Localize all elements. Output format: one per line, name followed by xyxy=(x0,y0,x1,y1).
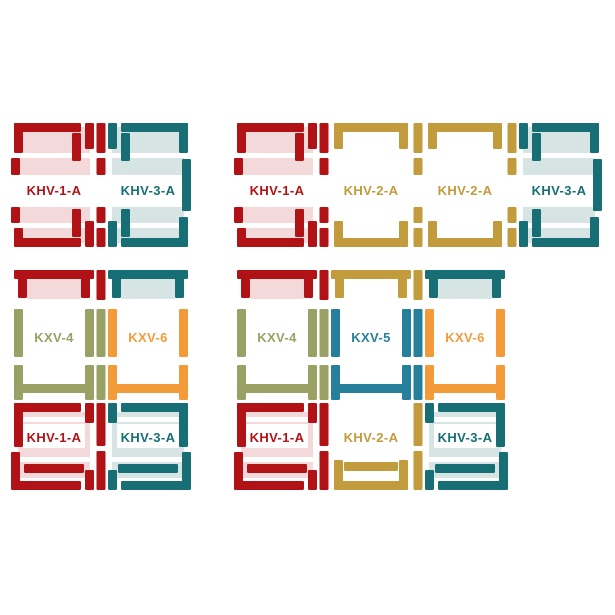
flashing-bar xyxy=(112,270,121,298)
flashing-bar xyxy=(334,238,408,247)
flashing-bar xyxy=(335,270,344,298)
flashing-bar xyxy=(72,209,81,237)
flashing-bar xyxy=(308,403,317,423)
flashing-unit-label: KHV-2-A xyxy=(344,430,399,445)
flashing-bar xyxy=(428,221,437,247)
flashing-unit-label: KXV-5 xyxy=(351,330,391,345)
flashing-unit-label: KXV-6 xyxy=(128,330,168,345)
flashing-bar xyxy=(532,133,541,161)
flashing-bar xyxy=(85,221,94,247)
connector-bar xyxy=(320,228,329,247)
flashing-unit-kxv-6: KXV-6 xyxy=(425,270,505,400)
flashing-unit-khv-2-a: KHV-2-A xyxy=(428,123,502,247)
connector-bar xyxy=(414,270,423,300)
connector-bar xyxy=(414,228,423,247)
flashing-unit-kxv-6: KXV-6 xyxy=(108,270,188,400)
flashing-bar xyxy=(295,133,304,161)
flashing-unit-kxv-4: KXV-4 xyxy=(14,270,94,400)
fill-notch-stripe xyxy=(429,457,501,462)
flashing-bar xyxy=(121,133,130,161)
flashing-bar xyxy=(14,309,23,357)
flashing-unit-khv-1-a: KHV-1-A xyxy=(232,123,322,247)
flashing-bar xyxy=(24,464,84,473)
flashing-bar xyxy=(237,123,246,153)
flashing-bar xyxy=(85,470,94,490)
flashing-unit-label: KHV-3-A xyxy=(121,430,176,445)
flashing-group-top-left: KHV-1-AKHV-3-A xyxy=(9,118,193,252)
flashing-bar xyxy=(72,133,81,161)
flashing-bar xyxy=(14,238,81,247)
flashing-unit-label: KHV-1-A xyxy=(250,183,305,198)
flashing-bar xyxy=(425,470,434,490)
flashing-bar xyxy=(398,270,407,298)
flashing-bar xyxy=(429,270,438,298)
flashing-bar xyxy=(308,365,317,400)
flashing-bar xyxy=(14,403,81,412)
fill-notch-stripe xyxy=(515,223,603,228)
connector-bar xyxy=(320,270,329,300)
flashing-bar xyxy=(14,123,81,132)
flashing-bar xyxy=(493,123,502,149)
flashing-bar xyxy=(334,460,343,490)
flashing-bar xyxy=(331,309,340,357)
flashing-bar xyxy=(492,270,501,298)
flashing-unit-khv-3-a: KHV-3-A xyxy=(103,123,193,247)
flashing-unit-khv-3-a: KHV-3-A xyxy=(514,123,604,247)
fill-notch-stripe xyxy=(18,417,90,422)
connector-bar xyxy=(97,309,106,357)
flashing-bar xyxy=(179,365,188,400)
flashing-fill xyxy=(250,279,304,299)
flashing-bar xyxy=(402,365,411,400)
flashing-bar xyxy=(428,123,437,149)
flashing-bar xyxy=(425,384,505,393)
flashing-bar xyxy=(18,270,27,298)
flashing-unit-khv-3-a: KHV-3-A xyxy=(425,403,508,490)
flashing-bar xyxy=(175,270,184,298)
flashing-bar xyxy=(14,384,94,393)
flashing-bar xyxy=(532,123,599,132)
flashing-bar xyxy=(237,403,246,447)
connector-bar xyxy=(508,123,517,153)
flashing-group-bottom-left: KXV-4KXV-6KHV-1-AKHV-3-A xyxy=(9,265,193,495)
connector-bar xyxy=(414,403,423,446)
flashing-bar xyxy=(331,365,340,400)
flashing-group-top-right: KHV-1-AKHV-2-AKHV-2-AKHV-3-A xyxy=(232,118,604,252)
connector-bar xyxy=(320,451,329,490)
flashing-bar xyxy=(334,481,408,490)
flashing-unit-kxv-4: KXV-4 xyxy=(237,270,317,400)
flashing-bar xyxy=(532,238,599,247)
flashing-bar xyxy=(11,158,20,175)
connector-bar xyxy=(414,207,423,223)
flashing-bar xyxy=(108,384,188,393)
flashing-bar xyxy=(108,123,117,149)
flashing-bar xyxy=(237,228,246,247)
flashing-unit-label: KHV-1-A xyxy=(27,183,82,198)
fill-notch-stripe xyxy=(233,223,321,228)
flashing-bar xyxy=(121,209,130,237)
flashing-unit-label: KXV-4 xyxy=(257,330,297,345)
flashing-bar xyxy=(435,464,495,473)
flashing-unit-label: KHV-2-A xyxy=(344,183,399,198)
flashing-bar xyxy=(493,221,502,247)
flashing-bar xyxy=(14,123,23,153)
flashing-bar xyxy=(425,365,434,400)
flashing-bar xyxy=(295,209,304,237)
flashing-bar xyxy=(402,309,411,357)
connector-bar xyxy=(97,123,106,153)
connector-bar xyxy=(97,228,106,247)
flashing-fill xyxy=(27,279,81,299)
fill-notch-stripe xyxy=(104,223,192,228)
flashing-bar xyxy=(425,309,434,357)
flashing-bar xyxy=(179,217,188,247)
connector-bar xyxy=(320,158,329,175)
flashing-bar xyxy=(590,217,599,247)
flashing-bar xyxy=(425,403,434,423)
flashing-bar xyxy=(237,384,317,393)
flashing-fill xyxy=(438,279,492,299)
fill-notch-stripe xyxy=(241,457,313,462)
flashing-bar xyxy=(14,403,23,447)
flashing-bar xyxy=(496,403,505,447)
connector-bar xyxy=(320,309,329,357)
flashing-unit-khv-1-a: KHV-1-A xyxy=(9,123,99,247)
connector-bar xyxy=(97,365,106,400)
flashing-bar xyxy=(308,470,317,490)
flashing-bar xyxy=(85,365,94,400)
flashing-bar xyxy=(438,403,505,412)
fill-notch-stripe xyxy=(10,223,98,228)
fill-notch-stripe xyxy=(18,457,90,462)
fill-notch-stripe xyxy=(10,153,98,158)
flashing-bar xyxy=(118,464,178,473)
fill-notch-stripe xyxy=(515,153,603,158)
connector-bar xyxy=(414,365,423,400)
connector-bar xyxy=(97,207,106,223)
flashing-fill xyxy=(121,279,175,299)
flashing-unit-khv-1-a: KHV-1-A xyxy=(234,403,317,490)
flashing-unit-khv-3-a: KHV-3-A xyxy=(108,403,191,490)
flashing-bar xyxy=(496,365,505,400)
flashing-bar xyxy=(237,309,246,357)
flashing-bar xyxy=(593,159,602,211)
flashing-bar xyxy=(81,270,90,298)
fill-notch-stripe xyxy=(104,153,192,158)
flashing-bar xyxy=(237,365,246,400)
flashing-bar xyxy=(496,309,505,357)
flashing-group-bottom-right: KXV-4KXV-5KXV-6KHV-1-AKHV-2-AKHV-3-A xyxy=(232,265,510,495)
flashing-bar xyxy=(237,481,304,490)
flashing-bar xyxy=(438,481,505,490)
flashing-bar xyxy=(85,123,94,149)
flashing-unit-label: KHV-1-A xyxy=(27,430,82,445)
flashing-bar xyxy=(308,123,317,149)
flashing-unit-khv-2-a: KHV-2-A xyxy=(334,430,408,490)
flashing-bar xyxy=(334,123,343,149)
flashing-unit-label: KXV-6 xyxy=(445,330,485,345)
flashing-bar xyxy=(237,403,304,412)
flashing-unit-label: KHV-3-A xyxy=(121,183,176,198)
flashing-bar xyxy=(11,207,20,223)
flashing-bar xyxy=(121,481,188,490)
flashing-bar xyxy=(234,207,243,223)
flashing-bar xyxy=(179,309,188,357)
fill-notch-stripe xyxy=(112,457,184,462)
fill-notch-stripe xyxy=(112,417,184,422)
flashing-bar xyxy=(14,481,81,490)
flashing-bar xyxy=(179,123,188,153)
flashing-bar xyxy=(179,403,188,447)
flashing-bar xyxy=(234,158,243,175)
connector-bar xyxy=(97,270,106,300)
connector-bar xyxy=(97,451,106,490)
flashing-unit-label: KHV-3-A xyxy=(532,183,587,198)
flashing-unit-label: KHV-3-A xyxy=(438,430,493,445)
fill-notch-stripe xyxy=(241,417,313,422)
flashing-bar xyxy=(590,123,599,153)
connector-bar xyxy=(320,403,329,446)
flashing-bar xyxy=(428,238,502,247)
flashing-bar xyxy=(85,309,94,357)
flashing-unit-kxv-5: KXV-5 xyxy=(331,270,411,400)
connector-bar xyxy=(97,403,106,446)
connector-bar xyxy=(320,207,329,223)
connector-bar xyxy=(508,228,517,247)
flashing-bar xyxy=(247,464,307,473)
flashing-bar xyxy=(241,270,250,298)
flashing-bar xyxy=(237,238,304,247)
flashing-bar xyxy=(85,403,94,423)
flashing-bar xyxy=(108,309,117,357)
connector-bar xyxy=(414,451,423,490)
flashing-bar xyxy=(14,228,23,247)
flashing-bar xyxy=(519,221,528,247)
fill-notch-stripe xyxy=(429,417,501,422)
flashing-bar xyxy=(308,309,317,357)
fill-notch-stripe xyxy=(233,153,321,158)
flashing-bar xyxy=(182,159,191,211)
flashing-unit-label: KXV-4 xyxy=(34,330,74,345)
flashing-bar xyxy=(121,238,188,247)
flashing-unit-label: KHV-2-A xyxy=(438,183,493,198)
flashing-bar xyxy=(108,365,117,400)
flashing-bar xyxy=(237,123,304,132)
flashing-bar xyxy=(121,403,188,412)
flashing-bar xyxy=(334,123,408,132)
flashing-bar xyxy=(532,209,541,237)
flashing-bar xyxy=(399,123,408,149)
flashing-unit-khv-1-a: KHV-1-A xyxy=(11,403,94,490)
flashing-bar xyxy=(344,462,398,471)
flashing-bar xyxy=(108,470,117,490)
flashing-bar xyxy=(304,270,313,298)
flashing-bar xyxy=(334,221,343,247)
connector-bar xyxy=(414,123,423,153)
flashing-unit-khv-2-a: KHV-2-A xyxy=(334,123,408,247)
connector-bar xyxy=(320,123,329,153)
flashing-bar xyxy=(108,221,117,247)
flashing-bar xyxy=(108,403,117,423)
flashing-bar xyxy=(121,123,188,132)
flashing-bar xyxy=(331,384,411,393)
flashing-bar xyxy=(399,460,408,490)
connector-bar xyxy=(414,309,423,357)
connector-bar xyxy=(97,158,106,175)
flashing-bar xyxy=(399,221,408,247)
connector-bar xyxy=(508,207,517,223)
connector-bar xyxy=(508,158,517,175)
flashing-bar xyxy=(519,123,528,149)
flashing-bar xyxy=(308,221,317,247)
flashing-unit-label: KHV-1-A xyxy=(250,430,305,445)
connector-bar xyxy=(414,158,423,175)
flashing-diagram-canvas: KHV-1-AKHV-3-AKHV-1-AKHV-2-AKHV-2-AKHV-3… xyxy=(0,0,615,615)
flashing-bar xyxy=(428,123,502,132)
connector-bar xyxy=(320,365,329,400)
flashing-bar xyxy=(14,365,23,400)
